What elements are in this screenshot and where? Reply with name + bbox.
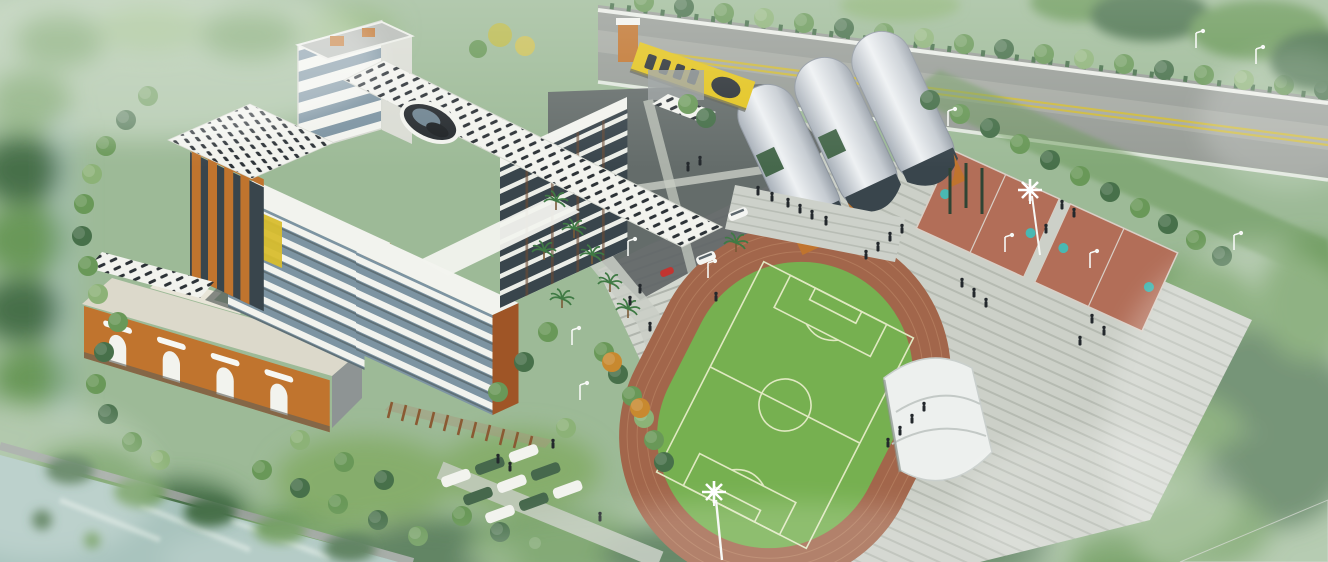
atmosphere [0,0,1328,562]
campus-rendering-stage [0,0,1328,562]
campus-aerial-rendering [0,0,1328,562]
